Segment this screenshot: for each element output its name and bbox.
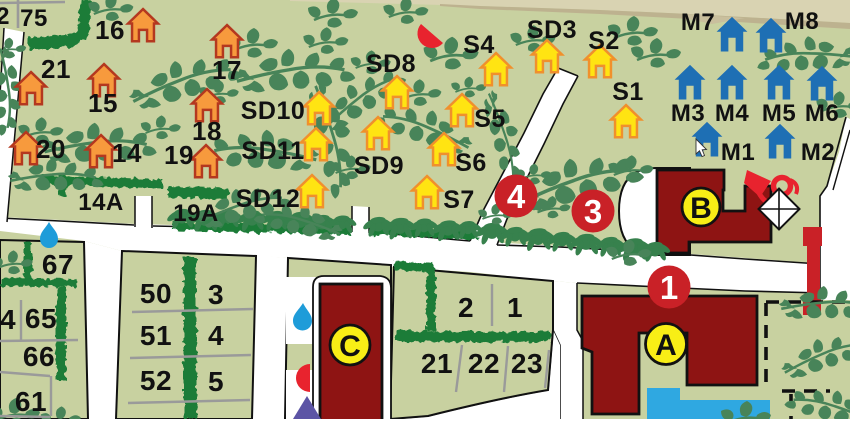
svg-text:14A: 14A (78, 189, 124, 216)
svg-text:C: C (339, 330, 361, 363)
svg-text:61: 61 (15, 386, 47, 417)
svg-text:65: 65 (25, 303, 57, 334)
svg-text:4: 4 (507, 178, 526, 215)
svg-text:19A: 19A (173, 200, 219, 227)
svg-text:52: 52 (140, 365, 172, 396)
svg-text:21: 21 (421, 348, 453, 379)
svg-text:M4: M4 (715, 100, 749, 127)
svg-text:5: 5 (208, 366, 224, 397)
svg-text:SD3: SD3 (527, 16, 577, 44)
svg-text:66: 66 (23, 341, 55, 372)
svg-text:75: 75 (20, 5, 48, 32)
svg-text:16: 16 (95, 15, 125, 45)
svg-text:SD12: SD12 (236, 185, 301, 213)
svg-text:22: 22 (468, 348, 500, 379)
svg-text:S6: S6 (455, 149, 487, 177)
svg-text:64: 64 (0, 304, 16, 335)
svg-text:M7: M7 (681, 9, 715, 36)
svg-text:S1: S1 (612, 78, 644, 106)
svg-text:17: 17 (212, 55, 242, 85)
svg-text:2: 2 (0, 3, 10, 30)
svg-text:SD11: SD11 (241, 137, 304, 165)
svg-text:3: 3 (208, 279, 224, 310)
svg-text:4: 4 (208, 320, 224, 351)
svg-text:M6: M6 (805, 100, 839, 127)
svg-text:SD8: SD8 (366, 50, 416, 78)
svg-text:1: 1 (507, 292, 523, 323)
svg-text:S4: S4 (463, 31, 495, 59)
svg-text:3: 3 (584, 193, 602, 230)
svg-text:50: 50 (140, 278, 172, 309)
svg-text:2: 2 (458, 292, 474, 323)
svg-text:SD10: SD10 (241, 97, 306, 125)
svg-text:21: 21 (41, 54, 71, 84)
svg-text:M8: M8 (785, 8, 819, 35)
svg-text:M1: M1 (721, 139, 755, 166)
svg-text:23: 23 (511, 348, 543, 379)
svg-text:51: 51 (140, 320, 172, 351)
svg-text:SD9: SD9 (354, 152, 404, 180)
svg-text:67: 67 (42, 249, 74, 280)
svg-text:M5: M5 (762, 100, 796, 127)
svg-text:1: 1 (660, 269, 678, 306)
svg-text:S7: S7 (443, 186, 475, 214)
svg-text:S2: S2 (588, 27, 620, 55)
svg-text:S5: S5 (474, 105, 506, 133)
svg-text:19: 19 (164, 140, 194, 170)
svg-text:M2: M2 (801, 139, 835, 166)
svg-text:A: A (655, 329, 677, 362)
svg-text:15: 15 (88, 88, 118, 118)
svg-text:18: 18 (192, 116, 222, 146)
svg-text:M3: M3 (671, 100, 705, 127)
svg-text:20: 20 (36, 134, 66, 164)
svg-text:B: B (690, 192, 712, 225)
svg-text:14: 14 (112, 138, 142, 168)
